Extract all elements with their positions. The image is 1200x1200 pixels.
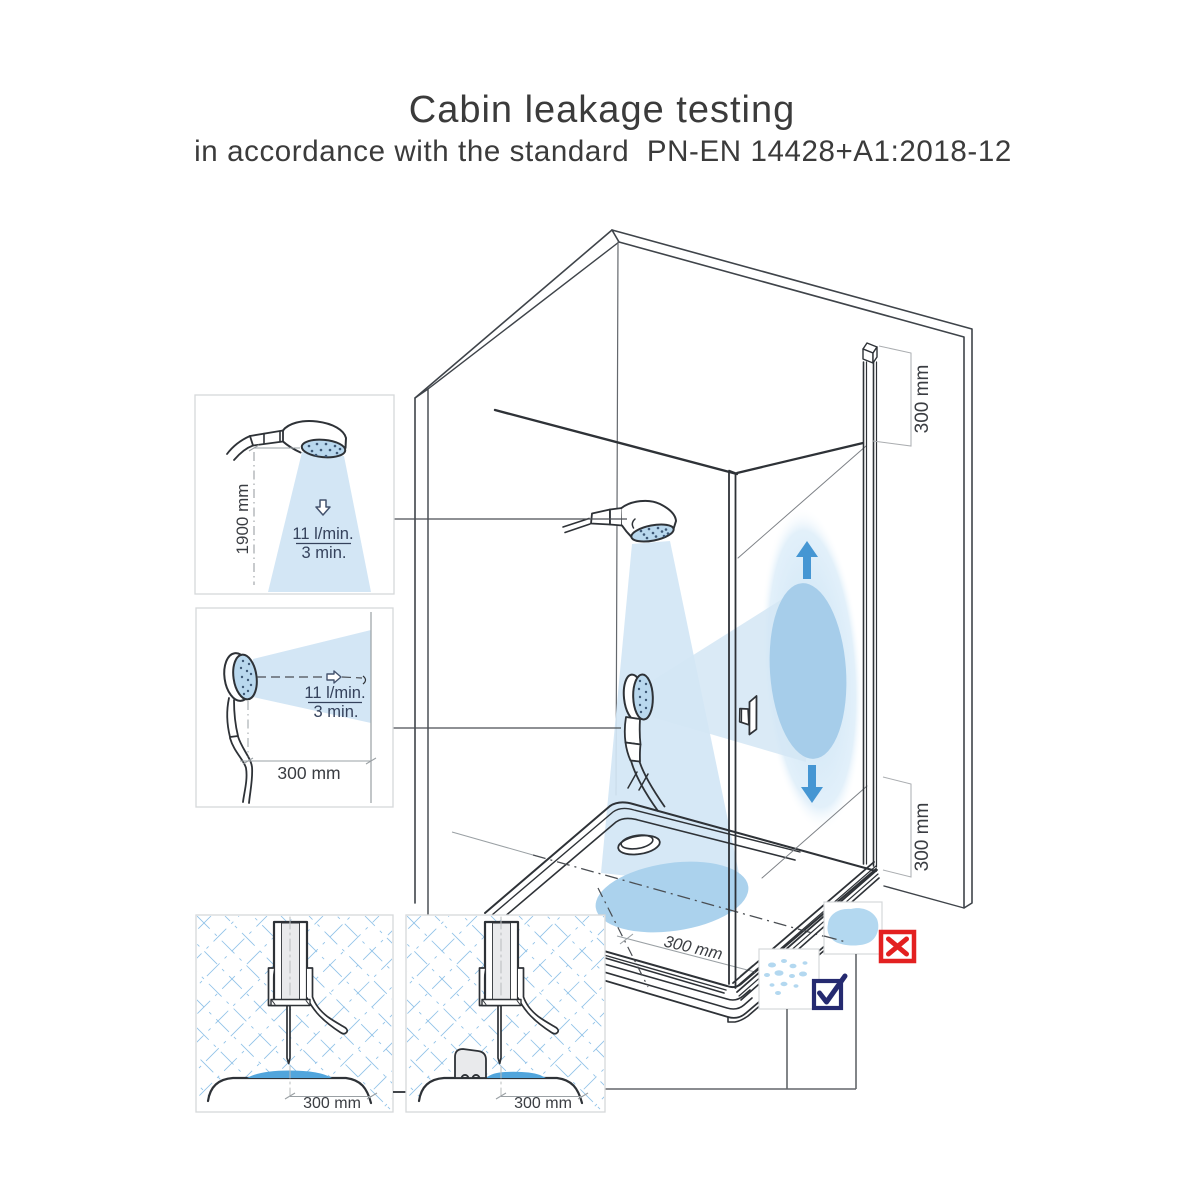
svg-text:300 mm: 300 mm [303, 1095, 361, 1112]
svg-text:Cabin leakage testing: Cabin leakage testing [409, 89, 795, 131]
svg-text:300 mm: 300 mm [277, 763, 340, 783]
svg-text:11 l/min.: 11 l/min. [304, 684, 365, 702]
svg-text:300 mm: 300 mm [514, 1095, 572, 1112]
svg-text:3 min.: 3 min. [314, 703, 359, 721]
svg-text:1900 mm: 1900 mm [233, 484, 252, 555]
svg-text:in accordance with the standar: in accordance with the standard PN-EN 14… [194, 135, 1012, 168]
svg-text:300 mm: 300 mm [912, 365, 933, 434]
svg-text:11 l/min.: 11 l/min. [292, 525, 353, 543]
svg-text:300 mm: 300 mm [912, 803, 933, 872]
svg-text:3 min.: 3 min. [302, 544, 347, 562]
